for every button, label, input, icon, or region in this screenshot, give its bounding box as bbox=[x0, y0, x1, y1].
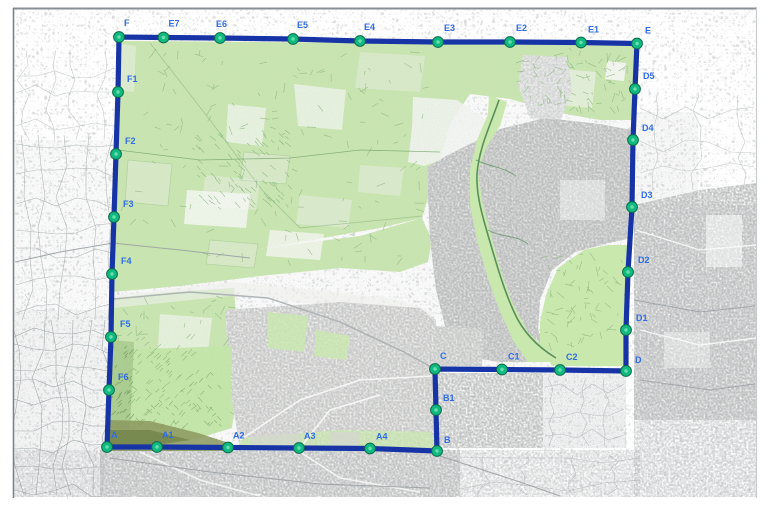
svg-text:D1: D1 bbox=[636, 313, 648, 323]
svg-text:C: C bbox=[440, 351, 447, 361]
svg-text:E7: E7 bbox=[169, 19, 180, 29]
svg-text:D3: D3 bbox=[641, 190, 653, 200]
svg-text:D4: D4 bbox=[642, 123, 654, 133]
svg-text:B: B bbox=[444, 435, 451, 445]
svg-text:C1: C1 bbox=[508, 352, 520, 362]
svg-text:E3: E3 bbox=[444, 23, 455, 33]
svg-text:C2: C2 bbox=[566, 352, 578, 362]
svg-text:E5: E5 bbox=[297, 20, 308, 30]
svg-text:E6: E6 bbox=[216, 19, 227, 29]
svg-text:D2: D2 bbox=[638, 255, 650, 265]
svg-text:D5: D5 bbox=[643, 71, 655, 81]
svg-text:F6: F6 bbox=[118, 372, 129, 382]
svg-text:E4: E4 bbox=[364, 22, 375, 32]
svg-text:D: D bbox=[635, 355, 642, 365]
svg-text:B1: B1 bbox=[443, 393, 455, 403]
svg-text:E: E bbox=[645, 26, 651, 36]
svg-text:A: A bbox=[111, 430, 118, 440]
svg-text:A1: A1 bbox=[162, 430, 174, 440]
svg-text:F5: F5 bbox=[120, 319, 131, 329]
svg-text:A3: A3 bbox=[304, 431, 316, 441]
svg-text:F3: F3 bbox=[123, 199, 134, 209]
svg-text:F2: F2 bbox=[125, 136, 136, 146]
svg-text:F1: F1 bbox=[127, 74, 138, 84]
svg-text:E1: E1 bbox=[588, 25, 599, 35]
svg-text:A4: A4 bbox=[376, 432, 388, 442]
svg-text:A2: A2 bbox=[233, 431, 245, 441]
svg-text:F4: F4 bbox=[121, 256, 132, 266]
svg-text:F: F bbox=[124, 18, 130, 28]
svg-text:E2: E2 bbox=[516, 23, 527, 33]
